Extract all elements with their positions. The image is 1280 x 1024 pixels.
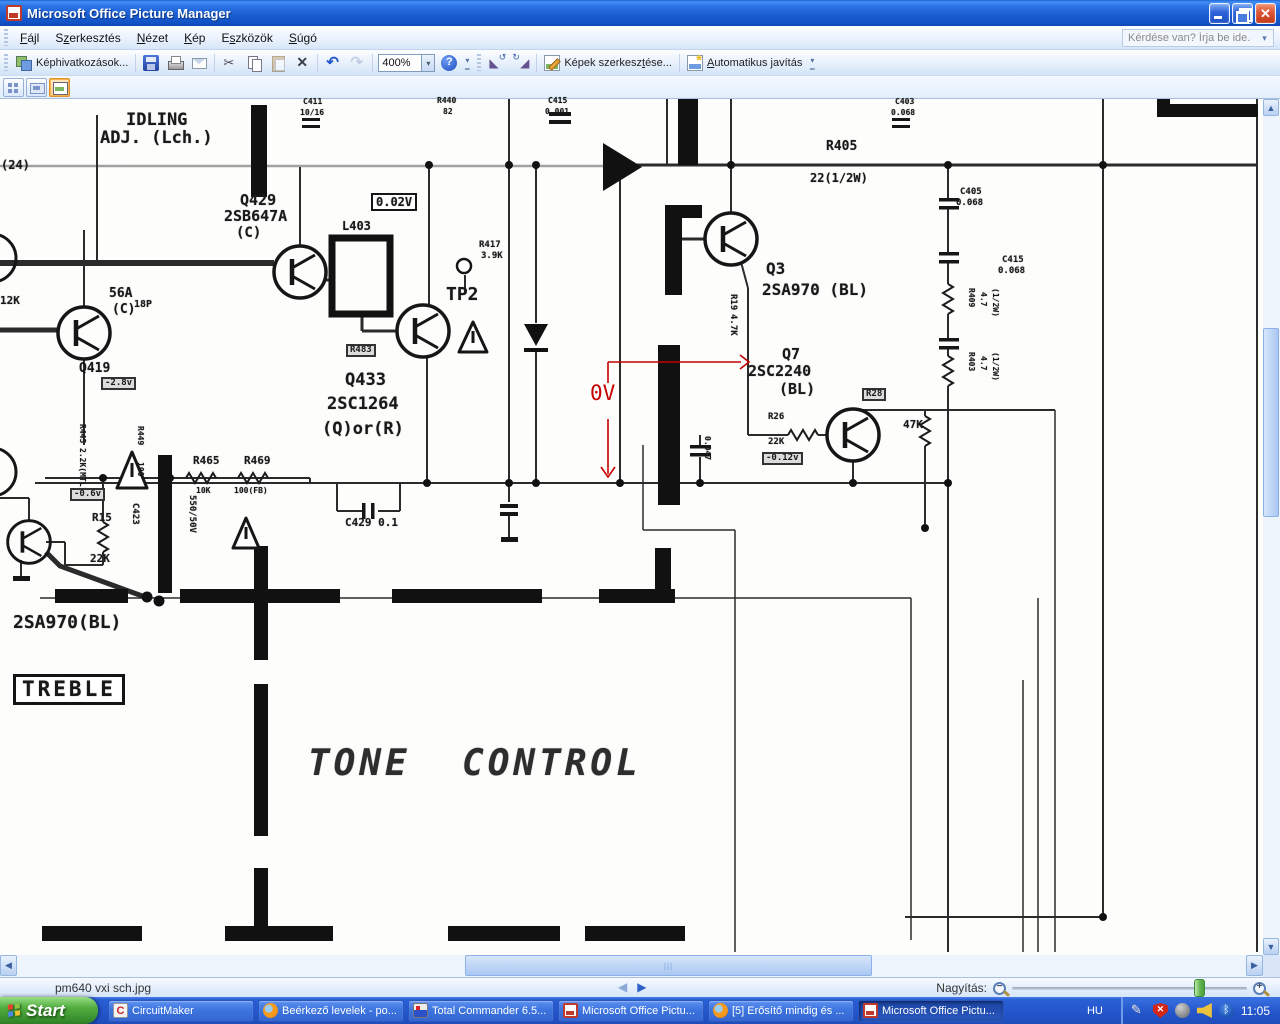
- scrollbar-corner: [1263, 955, 1280, 977]
- titlebar: Microsoft Office Picture Manager: [0, 0, 1280, 26]
- save-icon: [143, 55, 159, 71]
- window-title: Microsoft Office Picture Manager: [27, 6, 1209, 21]
- menu-item-nézet[interactable]: Nézet: [129, 27, 176, 49]
- edit-picture-icon: [544, 55, 560, 71]
- zoom-in-icon[interactable]: [1253, 982, 1266, 995]
- view-filmstrip-button[interactable]: [26, 78, 47, 97]
- scroll-left-button[interactable]: ◀: [0, 955, 17, 976]
- help-question-text: Kérdése van? Írja be ide.: [1128, 32, 1258, 44]
- delete-x-icon: [294, 55, 310, 71]
- pen-icon[interactable]: [1131, 1003, 1146, 1018]
- pcb-bars: [42, 99, 1258, 941]
- transistor-symbol: [274, 246, 326, 298]
- menu-item-szerkesztés[interactable]: Szerkesztés: [47, 27, 128, 49]
- zoom-select[interactable]: 400%: [378, 54, 435, 72]
- redo-icon: [349, 55, 365, 71]
- mopm-icon: [863, 1003, 878, 1018]
- next-picture-button[interactable]: ▶: [637, 980, 646, 994]
- taskbar-button[interactable]: Microsoft Office Pictu...: [558, 1000, 704, 1022]
- task-label: Microsoft Office Pictu...: [582, 1005, 695, 1017]
- vertical-scroll-thumb[interactable]: [1263, 328, 1279, 517]
- paste-button[interactable]: [266, 52, 290, 74]
- paste-icon: [270, 55, 286, 71]
- zoom-slider-thumb[interactable]: [1194, 979, 1205, 997]
- mail-icon: [191, 55, 207, 71]
- taskbar-button[interactable]: [5] Erősítő mindig és ...: [708, 1000, 854, 1022]
- menu-item-súgó[interactable]: Súgó: [281, 27, 325, 49]
- volume-icon[interactable]: [1197, 1003, 1212, 1018]
- horizontal-scrollbar[interactable]: ◀ ||| ▶: [0, 955, 1263, 977]
- menu-items: FájlSzerkesztésNézetKépEszközökSúgó: [12, 26, 325, 49]
- undo-button[interactable]: [321, 52, 345, 74]
- security-shield-icon[interactable]: [1153, 1003, 1168, 1018]
- diode-symbol: [524, 324, 548, 346]
- picture-manager-window: Microsoft Office Picture Manager FájlSze…: [0, 0, 1280, 1024]
- menu-item-eszközök[interactable]: Eszközök: [213, 27, 280, 49]
- taskbar-button[interactable]: Total Commander 6.5...: [408, 1000, 554, 1022]
- copy-icon: [246, 55, 262, 71]
- task-label: [5] Erősítő mindig és ...: [732, 1005, 845, 1017]
- windows-flag-icon: [8, 1003, 21, 1018]
- view-single-picture-button[interactable]: [49, 78, 70, 97]
- copy-button[interactable]: [242, 52, 266, 74]
- shortcuts-button[interactable]: Képhivatkozások...: [12, 52, 132, 74]
- start-button[interactable]: Start: [0, 997, 98, 1024]
- test-point: [457, 259, 471, 273]
- transistor-symbol: [705, 213, 757, 265]
- taskbar-button[interactable]: Microsoft Office Pictu...: [858, 1000, 1004, 1022]
- status-icon[interactable]: [1175, 1003, 1190, 1018]
- toolbar-grip: [4, 54, 8, 71]
- autocorrect-button[interactable]: Automatikus javítás: [683, 52, 806, 74]
- zoom-value: 400%: [378, 54, 422, 72]
- system-tray: 11:05: [1121, 997, 1280, 1024]
- zoom-label: Nagyítás:: [936, 981, 987, 995]
- printer-icon: [167, 55, 183, 71]
- circuitmaker-icon: [113, 1003, 128, 1018]
- close-button[interactable]: [1255, 3, 1276, 24]
- restore-button[interactable]: [1232, 3, 1253, 24]
- autocorrect-icon: [687, 55, 703, 71]
- chevron-down-icon[interactable]: [1258, 33, 1271, 44]
- bluetooth-icon[interactable]: [1219, 1003, 1234, 1018]
- rotate-left-icon: [489, 55, 505, 71]
- minimize-button[interactable]: [1209, 3, 1230, 24]
- task-label: Total Commander 6.5...: [432, 1005, 546, 1017]
- app-icon: [6, 5, 22, 21]
- menu-item-fájl[interactable]: Fájl: [12, 27, 47, 49]
- firefox-icon: [713, 1003, 728, 1018]
- toolbar-grip: [4, 29, 8, 46]
- task-label: Microsoft Office Pictu...: [882, 1005, 995, 1017]
- transistor-symbol: [8, 521, 51, 564]
- zoom-out-icon[interactable]: [993, 982, 1006, 995]
- inductor-box: [332, 238, 390, 314]
- horizontal-scroll-thumb[interactable]: |||: [465, 955, 872, 976]
- menu-bar: FájlSzerkesztésNézetKépEszközökSúgó Kérd…: [0, 26, 1280, 50]
- toolbar-options-button[interactable]: [806, 52, 818, 74]
- schematic-drawing: [0, 99, 1263, 955]
- tc-icon: [413, 1003, 428, 1018]
- rotate-left-button[interactable]: [485, 52, 509, 74]
- taskbar-button[interactable]: CircuitMaker: [108, 1000, 254, 1022]
- zoom-slider[interactable]: [1012, 987, 1247, 990]
- taskbar: Start CircuitMakerBeérkező levelek - po.…: [0, 997, 1280, 1024]
- view-thumbnails-button[interactable]: [3, 78, 24, 97]
- language-indicator[interactable]: HU: [1087, 1005, 1103, 1017]
- transistor-symbol: [58, 307, 110, 359]
- scissors-icon: [222, 55, 238, 71]
- task-label: Beérkező levelek - po...: [282, 1005, 397, 1017]
- mopm-icon: [563, 1003, 578, 1018]
- menu-item-kép[interactable]: Kép: [176, 27, 213, 49]
- vertical-scrollbar[interactable]: ▲ ▼: [1263, 99, 1280, 955]
- filename-label: pm640 vxi sch.jpg: [55, 981, 151, 995]
- help-icon: [441, 55, 457, 71]
- transistor-symbol: [827, 409, 879, 461]
- redo-button[interactable]: [345, 52, 369, 74]
- scroll-right-button[interactable]: ▶: [1246, 955, 1263, 976]
- transistor-symbol: [397, 305, 449, 357]
- edit-pictures-button[interactable]: Képek szerkesztése...: [540, 52, 676, 74]
- toolbar-options-button[interactable]: [461, 52, 473, 74]
- picture-shortcuts-icon: [16, 55, 32, 71]
- send-mail-button[interactable]: [187, 52, 211, 74]
- save-button[interactable]: [139, 52, 163, 74]
- chevron-down-icon[interactable]: [422, 54, 435, 72]
- rotate-right-button[interactable]: [509, 52, 533, 74]
- help-question-box[interactable]: Kérdése van? Írja be ide.: [1122, 29, 1274, 47]
- rotate-right-icon: [513, 55, 529, 71]
- scroll-down-button[interactable]: ▼: [1263, 938, 1279, 955]
- toolbar-grip: [477, 54, 481, 71]
- standard-toolbar: Képhivatkozások... 400% Képek szerkeszté…: [0, 50, 1280, 76]
- undo-icon: [325, 55, 341, 71]
- help-button[interactable]: [437, 52, 461, 74]
- scroll-up-button[interactable]: ▲: [1263, 99, 1279, 116]
- taskbar-tasks: CircuitMakerBeérkező levelek - po...Tota…: [108, 997, 1087, 1024]
- status-bar: pm640 vxi sch.jpg ◀ ▶ Nagyítás:: [0, 977, 1280, 997]
- print-button[interactable]: [163, 52, 187, 74]
- previous-picture-button[interactable]: ◀: [618, 980, 627, 994]
- schematic-image[interactable]: [0, 99, 1263, 955]
- cut-button[interactable]: [218, 52, 242, 74]
- task-label: CircuitMaker: [132, 1005, 194, 1017]
- clock: 11:05: [1241, 1004, 1270, 1018]
- views-toolbar: [0, 76, 1280, 99]
- firefox-icon: [263, 1003, 278, 1018]
- delete-button[interactable]: [290, 52, 314, 74]
- taskbar-button[interactable]: Beérkező levelek - po...: [258, 1000, 404, 1022]
